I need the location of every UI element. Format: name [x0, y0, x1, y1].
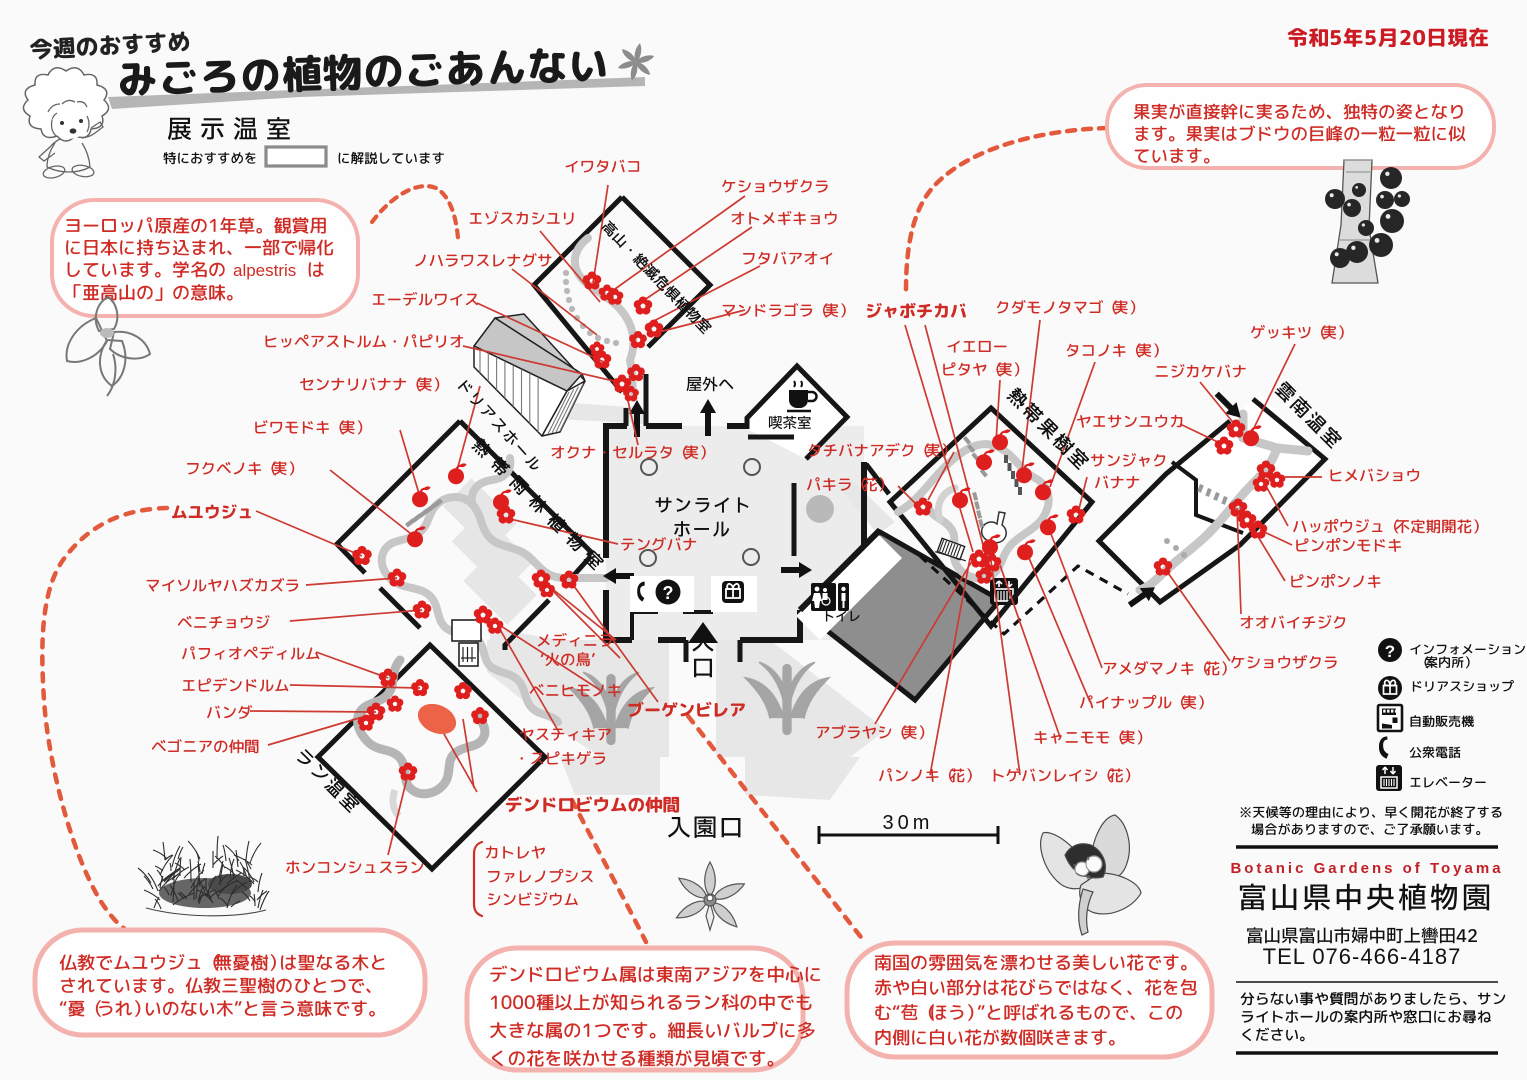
- svg-text:30m: 30m: [883, 812, 934, 834]
- svg-text:TEL 076-466-4187: TEL 076-466-4187: [1263, 944, 1462, 969]
- svg-text:alpestris: alpestris: [233, 261, 296, 280]
- svg-text:?: ?: [1385, 642, 1395, 661]
- svg-text:?: ?: [663, 583, 674, 603]
- svg-text:Botanic Gardens of Toyama: Botanic Gardens of Toyama: [1230, 860, 1503, 877]
